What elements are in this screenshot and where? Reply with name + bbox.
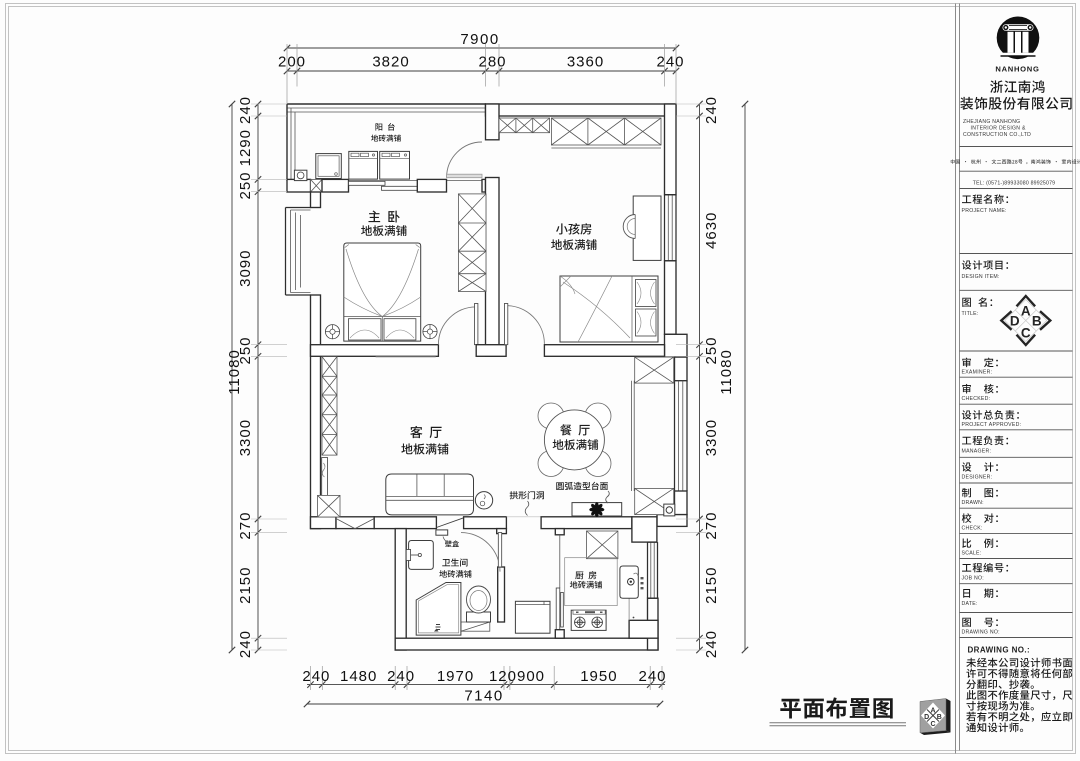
svg-text:EXAMINER:: EXAMINER: [962, 370, 993, 376]
svg-text:JOB NO:: JOB NO: [962, 576, 985, 582]
svg-text:CHECKED:: CHECKED: [962, 396, 991, 402]
svg-text:4630: 4630 [703, 212, 720, 249]
svg-text:3300: 3300 [237, 419, 254, 456]
svg-text:CHECK:: CHECK: [962, 526, 983, 532]
svg-text:C: C [930, 721, 935, 728]
svg-text:D: D [1010, 313, 1020, 328]
svg-text:C: C [1021, 325, 1031, 340]
svg-text:11080: 11080 [718, 349, 735, 395]
svg-text:A: A [1021, 304, 1031, 319]
svg-text:SCALE:: SCALE: [962, 551, 982, 557]
svg-text:270: 270 [237, 512, 254, 540]
svg-text:240: 240 [638, 668, 666, 685]
svg-text:240: 240 [703, 630, 720, 658]
svg-text:PROJECT APPROVED:: PROJECT APPROVED: [962, 422, 1022, 428]
svg-text:PROJECT NAME:: PROJECT NAME: [962, 208, 1007, 214]
svg-text:2150: 2150 [703, 567, 720, 604]
svg-text:ZHEJIANG NANHONG: ZHEJIANG NANHONG [963, 119, 1020, 125]
svg-text:DESIGNER:: DESIGNER: [962, 475, 993, 481]
svg-text:2150: 2150 [237, 567, 254, 604]
svg-text:DRAWING NO:: DRAWING NO: [962, 630, 1000, 636]
svg-text:DRAWN:: DRAWN: [962, 500, 984, 506]
svg-text:240: 240 [703, 96, 720, 124]
svg-text:CONSTRUCTION CO.,LTD: CONSTRUCTION CO.,LTD [963, 132, 1031, 138]
svg-text:B: B [937, 714, 942, 721]
svg-text:240: 240 [302, 668, 330, 685]
svg-text:1970: 1970 [437, 668, 474, 685]
svg-text:120900: 120900 [489, 668, 545, 685]
svg-text:240: 240 [237, 630, 254, 658]
svg-text:3360: 3360 [567, 54, 604, 71]
svg-text:D: D [924, 714, 929, 721]
svg-text:240: 240 [237, 96, 254, 124]
svg-text:1950: 1950 [580, 668, 617, 685]
svg-text:1480: 1480 [340, 668, 377, 685]
svg-text:MANAGER:: MANAGER: [962, 449, 992, 455]
svg-text:240: 240 [387, 668, 415, 685]
svg-text:11080: 11080 [226, 349, 243, 395]
svg-text:NANHONG: NANHONG [995, 65, 1039, 74]
svg-text:A: A [930, 708, 935, 715]
svg-text:240: 240 [656, 54, 684, 71]
svg-text:DESIGN ITEM:: DESIGN ITEM: [962, 274, 1000, 280]
svg-text:270: 270 [703, 512, 720, 540]
svg-text:3300: 3300 [703, 419, 720, 456]
svg-text:3090: 3090 [237, 250, 254, 287]
svg-text:TEL: (0571-)89933080 89925079: TEL: (0571-)89933080 89925079 [973, 181, 1056, 187]
svg-text:B: B [1032, 313, 1042, 328]
svg-text:280: 280 [478, 54, 506, 71]
svg-text:INTERIOR DESIGN &: INTERIOR DESIGN & [971, 126, 1026, 132]
svg-text:1290: 1290 [237, 129, 254, 166]
svg-text:250: 250 [237, 171, 254, 199]
svg-text:DATE:: DATE: [962, 601, 978, 607]
svg-text:3820: 3820 [372, 54, 409, 71]
svg-text:7900: 7900 [460, 31, 499, 48]
svg-text:TITLE:: TITLE: [962, 311, 979, 317]
svg-text:200: 200 [278, 54, 306, 71]
svg-text:DRAWING NO.:: DRAWING NO.: [968, 646, 1031, 655]
svg-text:7140: 7140 [464, 688, 503, 705]
